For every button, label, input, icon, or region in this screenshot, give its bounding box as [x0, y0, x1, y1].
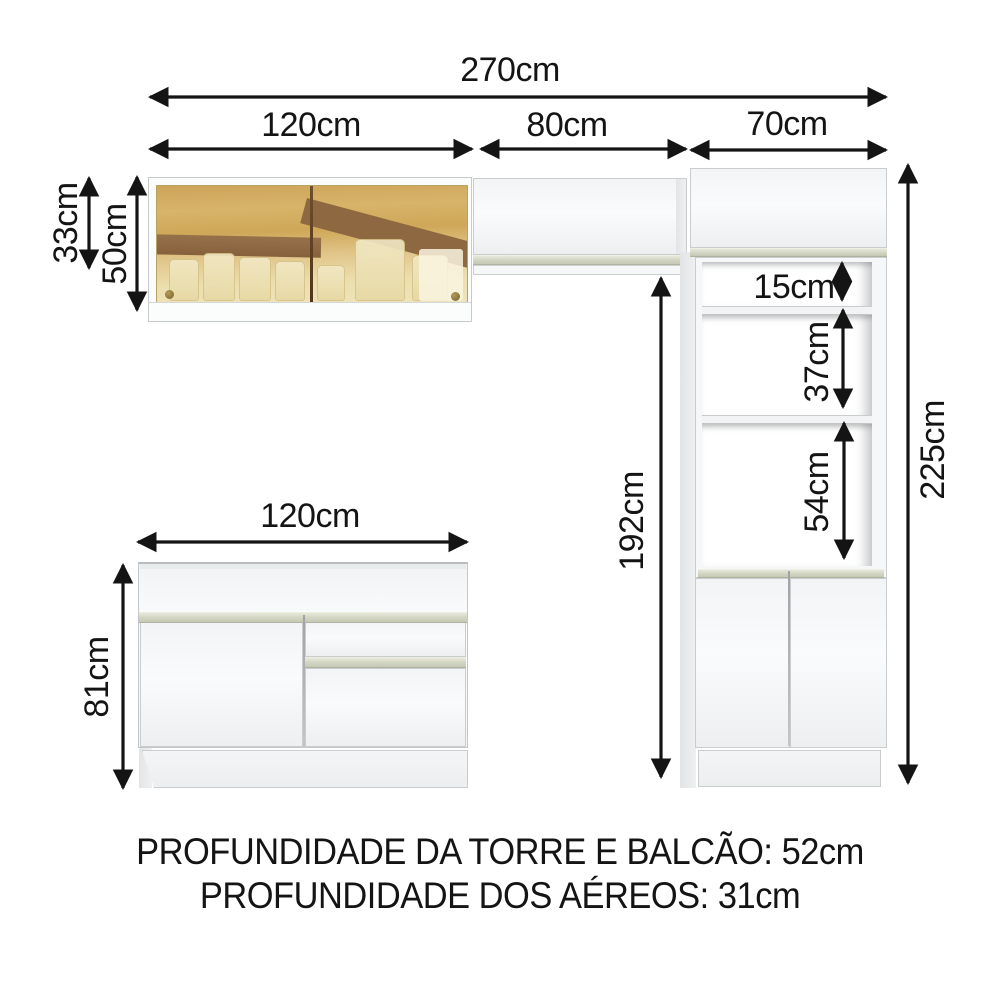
jar-reflection	[239, 257, 271, 301]
glass-door-knob-left	[165, 290, 174, 299]
tower-door-seam	[788, 571, 790, 746]
base-drawer	[305, 623, 466, 657]
kitchen-dimension-diagram: 270cm 120cm 80cm 70cm 33cm 50cm 192cm 22…	[0, 0, 1000, 1000]
wall-cabinet-80-door	[473, 178, 687, 255]
dim-label-glass-width: 120cm	[261, 108, 361, 142]
dim-label-base-height: 81cm	[80, 636, 114, 717]
base-door-right	[305, 668, 466, 747]
dim-label-base-width: 120cm	[260, 499, 360, 533]
depth-note-tower-base: PROFUNDIDADE DA TORRE E BALCÃO: 52cm	[35, 832, 965, 873]
tower-plinth	[698, 750, 881, 787]
glass-door-divider	[310, 186, 313, 305]
tower-side-panel	[680, 252, 696, 788]
tower-door-left	[695, 578, 790, 748]
tower-shelf-2	[702, 415, 872, 424]
dim-label-glass-door-height: 33cm	[49, 182, 83, 263]
dim-label-total-width: 270cm	[460, 53, 560, 87]
dim-label-clearance-height: 192cm	[615, 471, 649, 571]
tower-door-right	[790, 578, 887, 748]
dim-label-niche-mid: 37cm	[800, 321, 834, 402]
tower-niche-mid	[702, 315, 872, 415]
base-cabinet	[138, 562, 468, 788]
wall-cabinet-80	[473, 178, 687, 275]
tower-niche-bottom	[702, 424, 872, 566]
tower-top-handle-strip	[690, 248, 887, 257]
base-door-left	[140, 623, 303, 747]
jar-reflection	[203, 253, 235, 301]
wall-cabinet-glass	[148, 177, 472, 322]
jar-reflection	[275, 261, 305, 301]
jar-reflection	[355, 239, 405, 301]
tower-base-handle-strip	[698, 569, 884, 578]
dim-label-mid-width: 80cm	[526, 108, 607, 142]
glass-reflection-band	[156, 234, 321, 258]
base-door-seam	[303, 615, 305, 747]
dim-label-niche-bottom: 54cm	[800, 451, 834, 532]
dim-label-glass-height: 50cm	[98, 203, 132, 284]
base-cabinet-open-top	[140, 564, 466, 569]
glass-sliding-doors	[156, 185, 468, 306]
dim-label-tower-width: 70cm	[746, 107, 827, 141]
base-plinth	[142, 750, 468, 788]
tower-shelf-1	[702, 306, 872, 315]
wall-cabinet-80-bottom	[473, 265, 687, 275]
depth-note-wall-units: PROFUNDIDADE DOS AÉREOS: 31cm	[35, 876, 965, 917]
dim-label-tower-height: 225cm	[916, 400, 950, 500]
dim-label-niche-top: 15cm	[753, 270, 834, 304]
glass-cabinet-bottom	[149, 302, 471, 321]
base-handle-strip-drawer	[305, 657, 466, 668]
tower-top-door	[690, 168, 887, 248]
tower-cabinet	[680, 168, 887, 788]
wall-cabinet-80-handle-strip	[473, 255, 687, 265]
glass-door-knob-right	[451, 292, 460, 301]
jar-reflection	[317, 265, 345, 301]
